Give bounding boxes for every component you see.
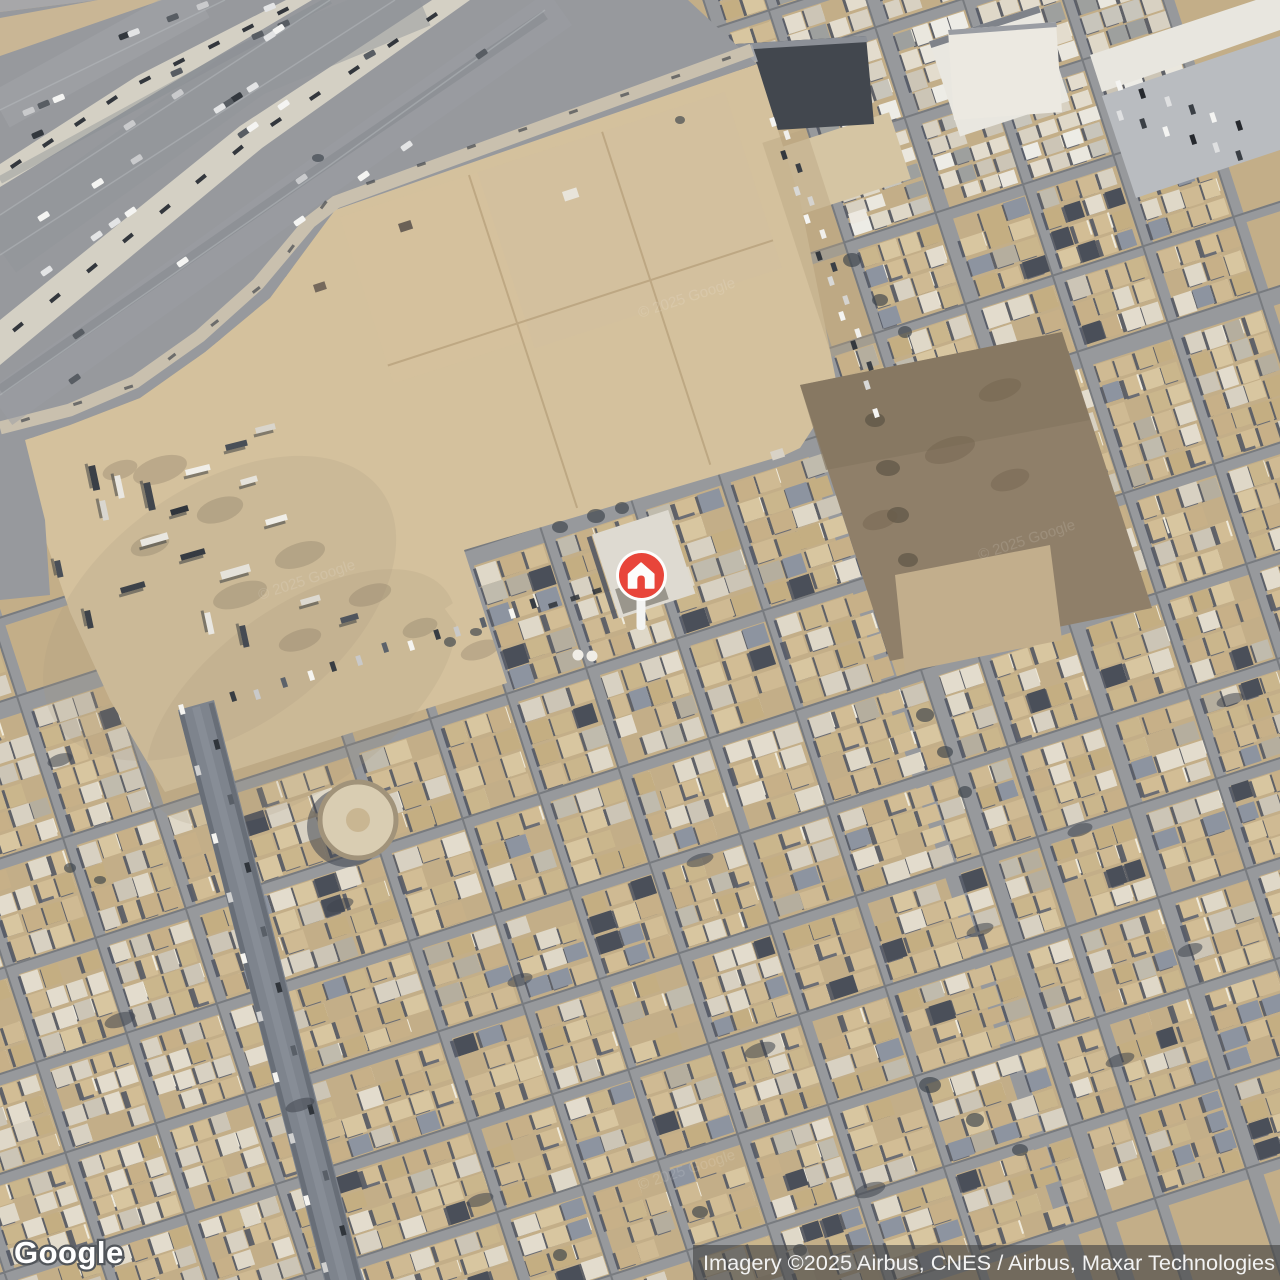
svg-text:Imagery ©2025 Airbus, CNES / A: Imagery ©2025 Airbus, CNES / Airbus, Max… xyxy=(703,1252,1275,1275)
svg-text:Google: Google xyxy=(14,1235,124,1270)
